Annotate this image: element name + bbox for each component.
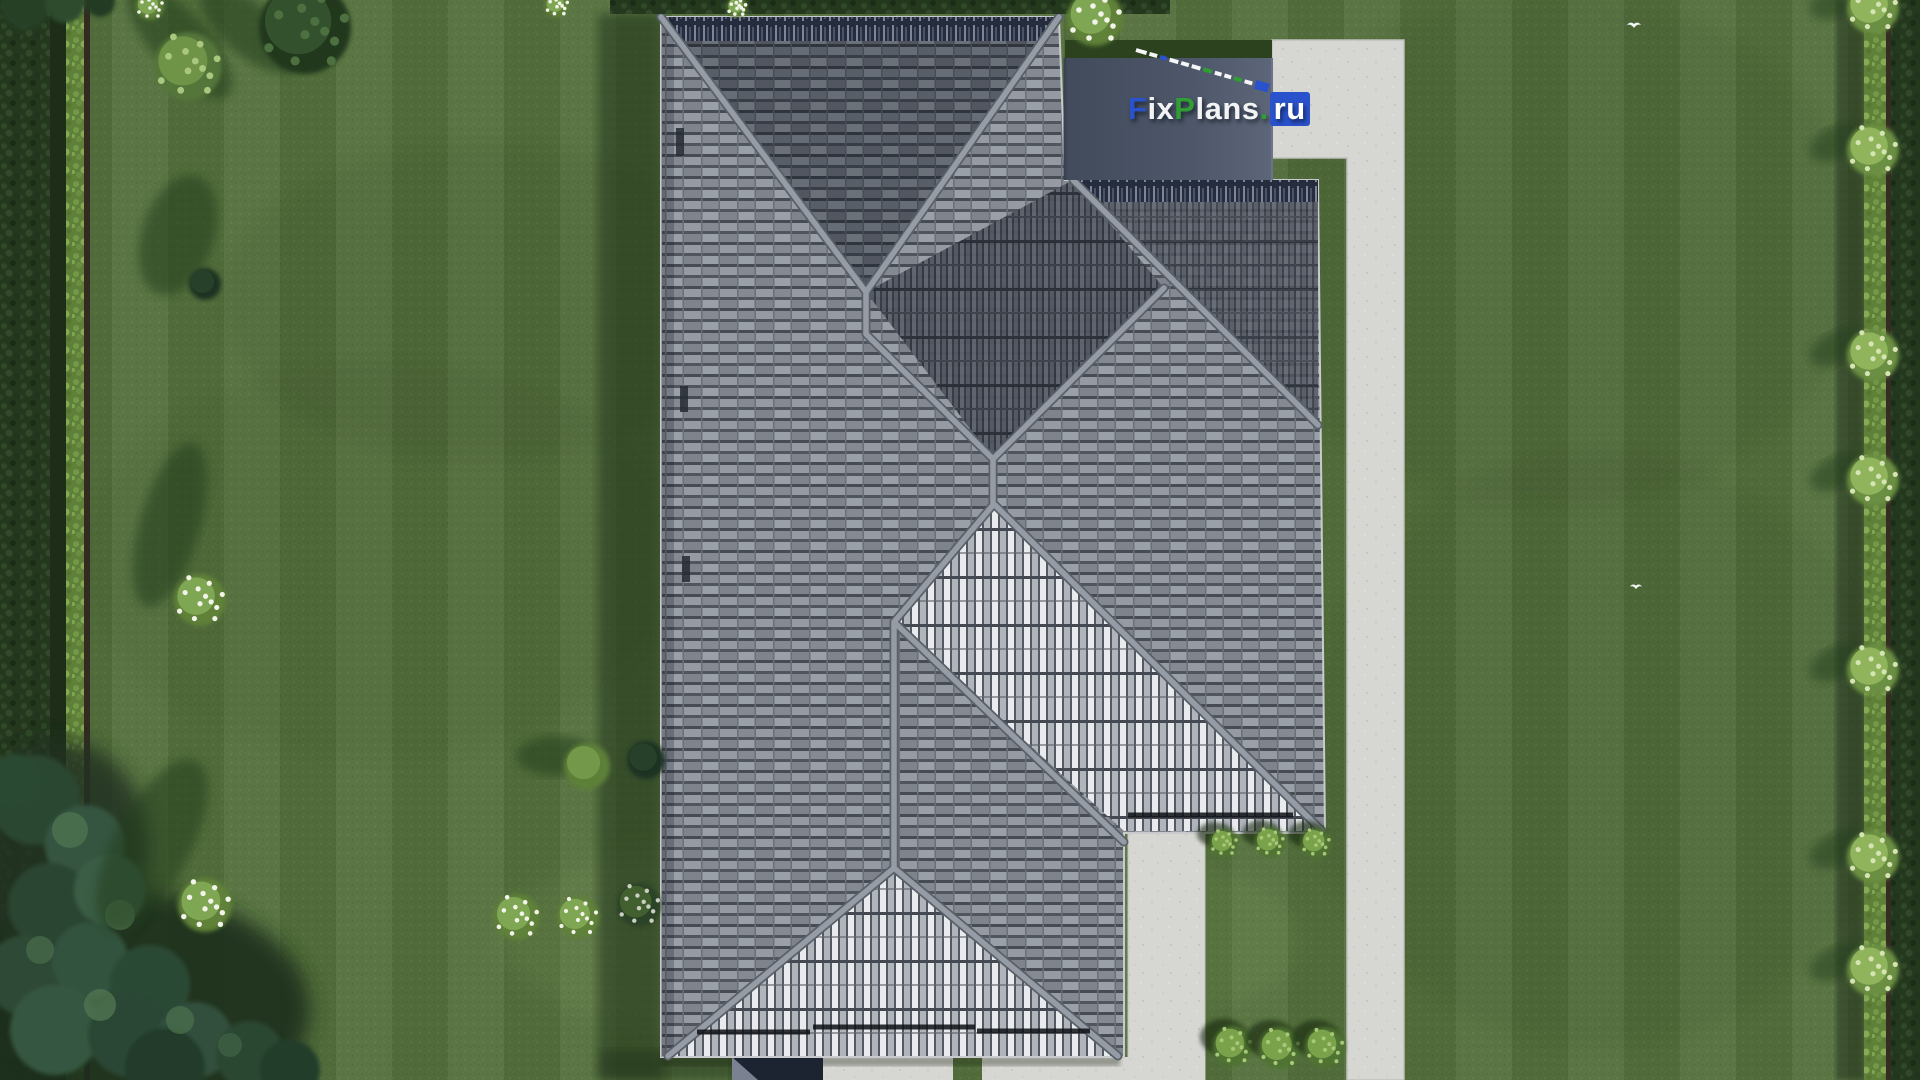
garage-wall bbox=[732, 1057, 823, 1080]
hedge-bush bbox=[1847, 831, 1899, 883]
flower-bush bbox=[557, 896, 599, 938]
inset-bush bbox=[1305, 1027, 1345, 1067]
watermark-logo-part: lans bbox=[1195, 91, 1259, 126]
flower-bush bbox=[178, 878, 232, 932]
watermark-logo: FixPlans.ru bbox=[1128, 92, 1310, 126]
flower-bush bbox=[494, 894, 540, 940]
bush-dark bbox=[627, 741, 665, 779]
bush bbox=[564, 743, 610, 789]
watermark-logo-part: P bbox=[1174, 91, 1195, 126]
inset-bush bbox=[1255, 827, 1285, 857]
roof-vent bbox=[680, 386, 688, 412]
watermark-logo-part: F bbox=[1128, 91, 1147, 126]
watermark-logo-part: . bbox=[1260, 91, 1269, 126]
aerial-site-plan: FixPlans.ru bbox=[0, 0, 1920, 1080]
watermark-logo-part: ru bbox=[1270, 92, 1310, 126]
hedge-bush bbox=[1847, 944, 1899, 996]
inset-bush bbox=[1213, 1026, 1253, 1066]
roof-vent bbox=[682, 556, 690, 582]
roof-eave-top bbox=[661, 17, 1059, 41]
hedge-bush bbox=[1847, 644, 1899, 696]
hedge-bush bbox=[1847, 454, 1899, 506]
inset-bush bbox=[1210, 829, 1238, 857]
flower-bush bbox=[174, 574, 226, 626]
roof-eave-wing bbox=[1073, 180, 1318, 202]
roof-vent bbox=[676, 128, 684, 156]
hedge-bush bbox=[1847, 329, 1899, 381]
tree bbox=[154, 32, 222, 100]
hedge-bush bbox=[1847, 124, 1899, 176]
bush-dark bbox=[189, 268, 221, 300]
watermark-logo-part: ix bbox=[1147, 91, 1174, 126]
flower-bush-shaded bbox=[617, 883, 661, 927]
inset-bush bbox=[1301, 828, 1331, 858]
scene-canvas bbox=[0, 0, 1920, 1080]
